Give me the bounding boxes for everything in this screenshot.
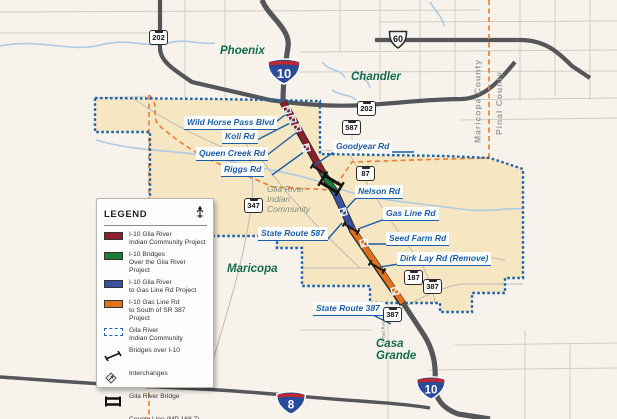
community-boundary-swatch-icon (104, 328, 124, 336)
sr-87-number: 87 (357, 167, 374, 181)
legend-divider (104, 225, 207, 226)
sr-387-shield-east: 387 (423, 279, 442, 294)
legend-item-bridges-green: I-10 Bridges Over the Gila River Project (104, 251, 207, 275)
legend-item-community: Gila River Indian Community (104, 327, 207, 343)
bridge-over-icon (104, 348, 124, 366)
az-banner (155, 30, 163, 33)
legend-item-project-red: I-10 Gila River Indian Community Project (104, 231, 207, 247)
legend-panel: LEGEND I-10 Gila River Indian Community … (96, 198, 214, 388)
sr-202-number: 202 (358, 102, 375, 116)
map-canvas: Phoenix Chandler Maricopa Casa Grande Gi… (0, 0, 617, 419)
legend-item-interchanges: Interchanges (104, 370, 207, 389)
area-label-gila-river-indian-community: Gila River Indian Community (267, 184, 310, 214)
az-banner (410, 270, 418, 273)
interstate-10-shield-south: 10 (415, 375, 447, 400)
us-60-number: 60 (393, 34, 403, 44)
road-label-riggs-rd: Riggs Rd (221, 163, 264, 177)
city-label-casa-grande: Casa Grande (376, 338, 416, 362)
green-swatch-icon (104, 252, 124, 260)
red-swatch-icon (104, 232, 124, 240)
sr-387-number: 387 (384, 308, 401, 322)
sr-347-shield: 347 (244, 198, 263, 213)
legend-item-bridges-over: Bridges over I-10 (104, 347, 207, 366)
road-label-seed-farm-rd: Seed Farm Rd (386, 232, 449, 246)
us-60-shield: 60 (387, 29, 409, 50)
road-label-nelson-rd: Nelson Rd (355, 185, 403, 199)
legend-item-gila-bridge: Gila River Bridge (104, 393, 207, 412)
sr-387-number: 387 (424, 280, 441, 294)
road-label-gas-line-rd: Gas Line Rd (383, 207, 439, 221)
north-arrow-icon (195, 205, 205, 224)
sr-202-shield-east: 202 (357, 101, 376, 116)
az-banner (389, 307, 397, 310)
city-label-phoenix: Phoenix (220, 45, 265, 57)
legend-item-gasline-blue: I-10 Gila River to Gas Line Rd Project (104, 279, 207, 295)
sr-387-shield-south: 387 (383, 307, 402, 322)
interchange-icon (104, 371, 124, 389)
sr-587-shield: 587 (342, 120, 361, 135)
road-label-wild-horse-pass-blvd: Wild Horse Pass Blvd (184, 116, 277, 130)
road-label-dirk-lay-rd: Dirk Lay Rd (Remove) (397, 252, 491, 266)
sr-347-number: 347 (245, 199, 262, 213)
blue-swatch-icon (104, 280, 124, 288)
county-label-maricopa: Maricopa County (473, 54, 483, 149)
road-label-queen-creek-rd: Queen Creek Rd (196, 147, 268, 161)
az-banner (348, 120, 356, 123)
az-banner (250, 198, 258, 201)
interstate-10-number: 10 (425, 385, 438, 397)
interstate-10-shield-north: 10 (266, 57, 302, 85)
interstate-10-number: 10 (277, 66, 291, 81)
orange-swatch-icon (104, 300, 124, 308)
legend-item-south-orange: I-10 Gas Line Rd to South of SR 387 Proj… (104, 299, 207, 323)
city-label-chandler: Chandler (351, 71, 401, 83)
road-label-state-route-587: State Route 587 (258, 227, 328, 241)
sr-587-number: 587 (343, 121, 360, 135)
az-banner (429, 279, 437, 282)
gila-river-bridge-icon (104, 394, 124, 412)
sr-187-number: 187 (405, 271, 422, 285)
sr-202-shield-west: 202 (149, 30, 168, 45)
road-label-goodyear-rd: Goodyear Rd (333, 140, 392, 153)
az-banner (363, 101, 371, 104)
city-label-maricopa: Maricopa (227, 263, 278, 275)
sr-187-shield: 187 (404, 270, 423, 285)
interstate-8-shield: 8 (275, 390, 307, 415)
sr-87-shield: 87 (356, 166, 375, 181)
sr-202-number: 202 (150, 31, 167, 45)
az-banner (362, 166, 370, 169)
county-label-pinal: Pinal County (494, 63, 504, 143)
road-label-koli-rd: Koli Rd (222, 130, 258, 144)
interstate-8-number: 8 (288, 400, 295, 412)
road-label-state-route-387: State Route 387 (313, 302, 383, 316)
legend-title: LEGEND (104, 209, 147, 220)
